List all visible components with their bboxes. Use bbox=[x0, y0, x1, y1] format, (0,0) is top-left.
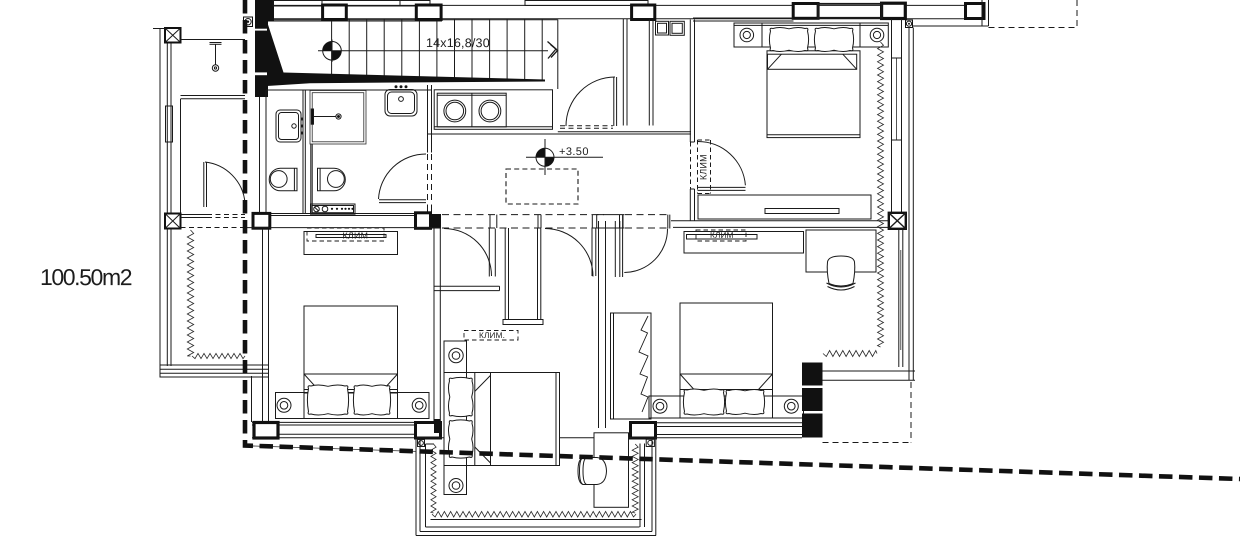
svg-text:КЛИМ: КЛИМ bbox=[699, 154, 709, 180]
svg-text:КЛИМ: КЛИМ bbox=[710, 231, 734, 240]
svg-text:+3.50: +3.50 bbox=[559, 146, 589, 158]
svg-text:14x16,8/30: 14x16,8/30 bbox=[426, 36, 490, 50]
svg-text:КЛИМ.: КЛИМ. bbox=[479, 331, 505, 340]
svg-text:100.50m2: 100.50m2 bbox=[40, 264, 132, 290]
svg-text:КЛИМ: КЛИМ bbox=[342, 231, 368, 241]
